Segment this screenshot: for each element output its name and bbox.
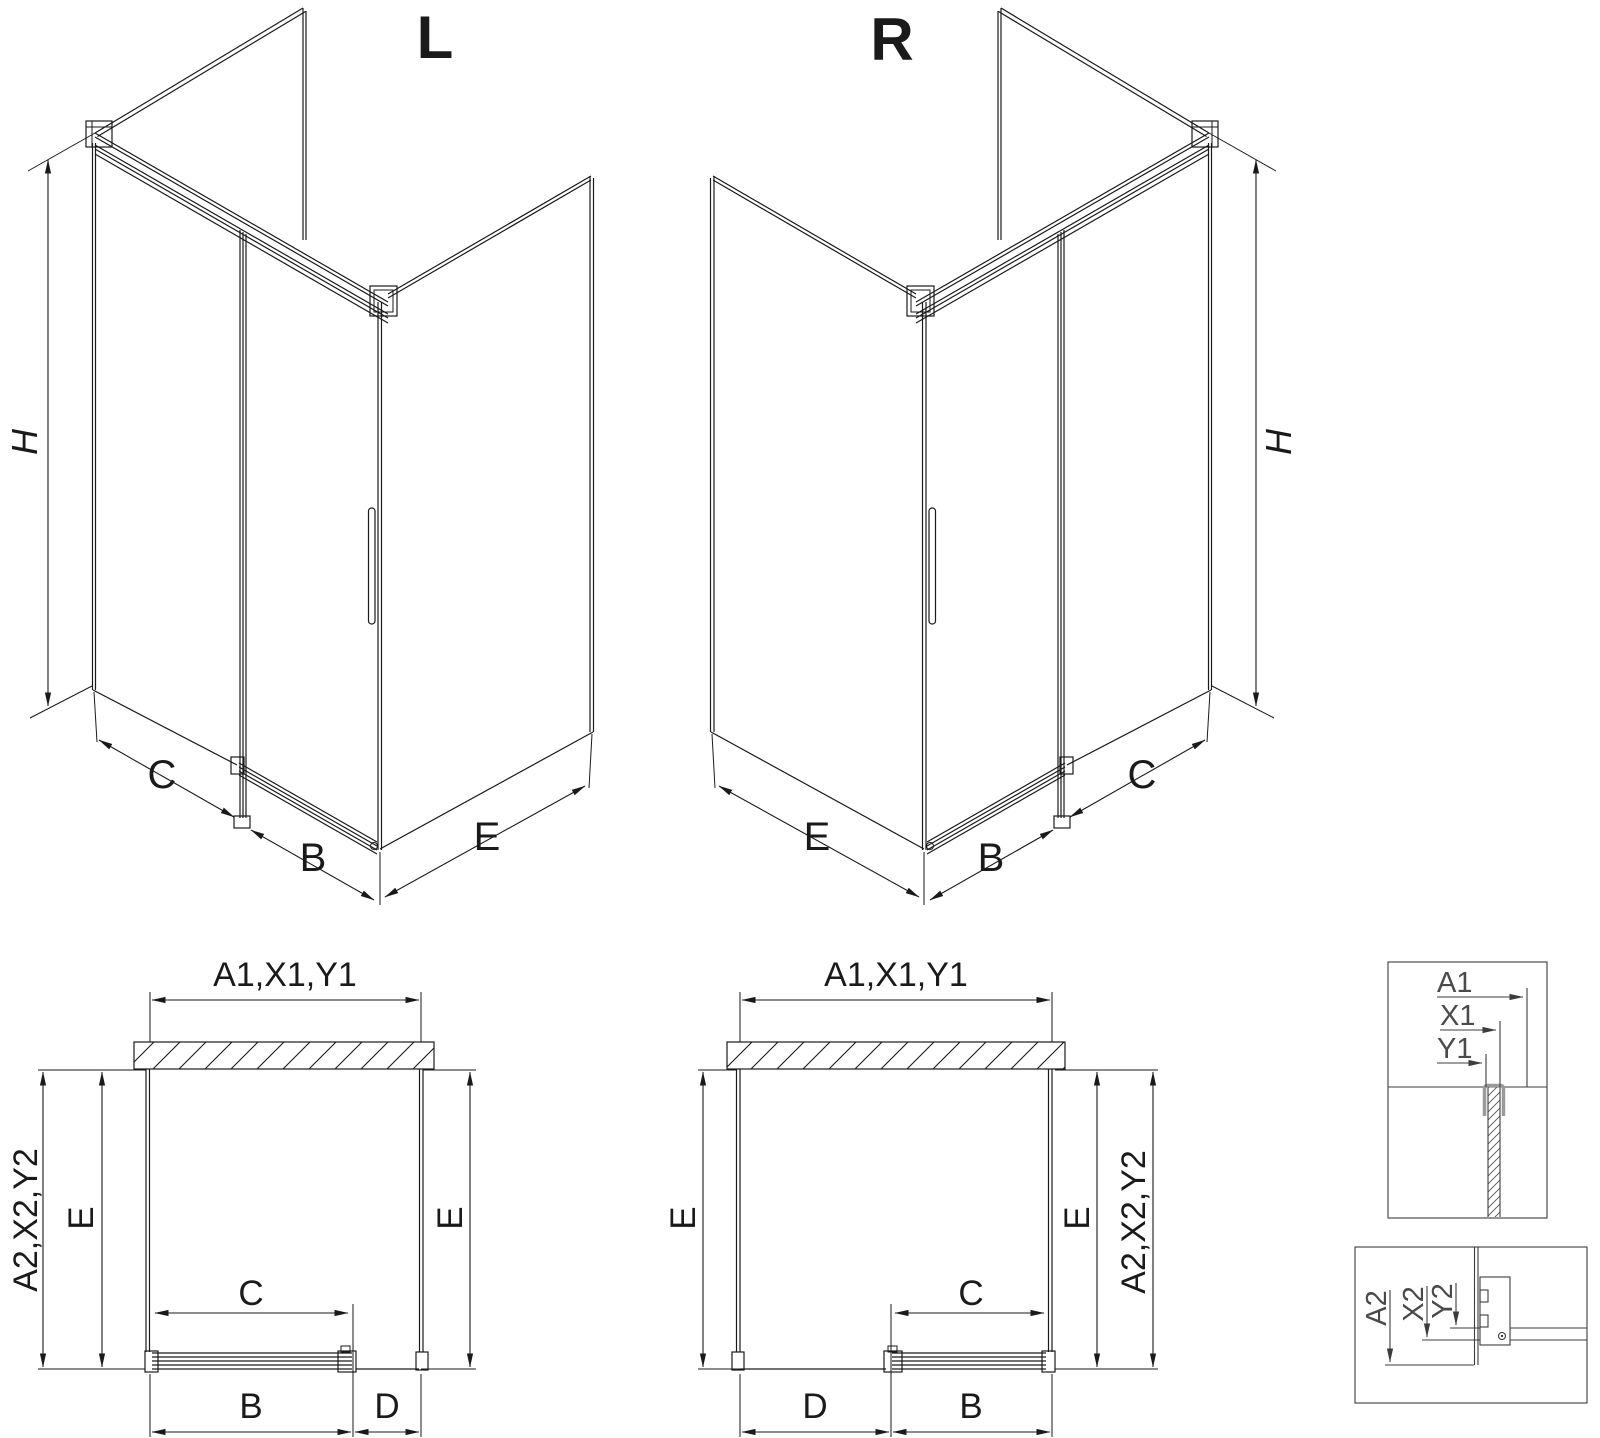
- dim-label-E-right: E: [1058, 1206, 1097, 1229]
- door-assembly-plan-right: [740, 1346, 1055, 1372]
- back-panel-left: [93, 8, 307, 765]
- dim-label-E-left: E: [664, 1206, 703, 1229]
- dimension-height-left: H: [4, 133, 95, 718]
- dimension-depth-plan-right: E A2,X2,Y2: [1055, 1070, 1158, 1369]
- svg-text:Y2: Y2: [1427, 1283, 1459, 1318]
- glass-panels-plan-right: [732, 1069, 1052, 1370]
- wall-hatch: [134, 1042, 434, 1069]
- door-handle: [369, 508, 376, 624]
- detail-panel-top: A1 X1 Y1: [1388, 962, 1547, 1218]
- dimension-c-plan-right: C: [891, 1274, 1044, 1352]
- panel-divider-right: [1054, 230, 1070, 828]
- dimension-fixed-left: C: [94, 692, 234, 817]
- detail-panel-bottom: A2 X2 Y2: [1355, 1247, 1587, 1403]
- dimension-side-left: E: [385, 734, 592, 897]
- dim-label-E: E: [804, 815, 831, 859]
- svg-text:Y1: Y1: [1437, 1033, 1472, 1065]
- dimension-depth-plan-left: A2,X2,Y2 E: [7, 1070, 146, 1369]
- detail-dim-X2: X2: [1398, 1286, 1430, 1337]
- svg-text:X1: X1: [1440, 1000, 1475, 1032]
- svg-text:A1: A1: [1437, 967, 1472, 999]
- variant-right-label: R: [870, 6, 913, 73]
- detail-dim-A2: A2: [1361, 1290, 1393, 1362]
- divider-foot: [1054, 816, 1070, 828]
- door-handle: [929, 508, 936, 624]
- dim-label-A2X2Y2: A2,X2,Y2: [7, 1148, 45, 1292]
- detail-dim-Y2: Y2: [1427, 1283, 1459, 1325]
- dim-label-C: C: [958, 1274, 983, 1313]
- dim-label-A1X1Y1: A1,X1,Y1: [213, 956, 357, 994]
- dim-label-B: B: [300, 836, 327, 880]
- dim-label-E-right: E: [431, 1206, 470, 1229]
- detail-dim-Y1: Y1: [1437, 1033, 1486, 1087]
- dimension-a1-plan-right: A1,X1,Y1: [740, 956, 1052, 1042]
- dim-label-B: B: [959, 1387, 982, 1426]
- dimension-c-plan-left: C: [155, 1274, 353, 1352]
- variant-left-label: L: [417, 4, 454, 71]
- dim-label-C: C: [148, 753, 177, 797]
- back-panel-right: [998, 8, 1212, 765]
- svg-text:X2: X2: [1398, 1286, 1430, 1321]
- dim-label-B: B: [978, 836, 1005, 880]
- dim-label-A1X1Y1: A1,X1,Y1: [824, 956, 968, 994]
- dim-label-D: D: [802, 1387, 827, 1426]
- dimension-e-right-plan-left: E: [421, 1070, 476, 1369]
- wall-hatch: [727, 1042, 1065, 1069]
- technical-drawing-sheet: L: [0, 0, 1600, 1438]
- dim-label-E-left: E: [62, 1206, 101, 1229]
- dim-label-H: H: [1258, 428, 1299, 455]
- shower-enclosure-diagram: L: [0, 0, 1600, 1438]
- door-assembly-plan-left: [145, 1346, 419, 1372]
- dimension-a1-plan-left: A1,X1,Y1: [150, 956, 421, 1042]
- dimension-fixed-right: C: [1070, 692, 1210, 817]
- svg-text:A2: A2: [1361, 1290, 1393, 1325]
- dimension-side-right: E: [712, 734, 919, 897]
- dim-label-C: C: [1128, 753, 1157, 797]
- iso-view-left: L: [4, 4, 594, 905]
- plan-view-left: A1,X1,Y1 A2,X2,Y2 E E C B D: [7, 956, 476, 1437]
- iso-view-right: R: [711, 6, 1300, 905]
- dim-label-C: C: [238, 1274, 263, 1313]
- plan-view-right: A1,X1,Y1 E E A2,X2,Y2 C D B: [664, 956, 1158, 1437]
- dimension-e-left-plan-right: E: [664, 1070, 740, 1369]
- glass-section: [1488, 1087, 1500, 1217]
- divider-foot: [234, 816, 250, 828]
- dimension-height-right: H: [1209, 133, 1299, 718]
- glass-panels-plan-left: [146, 1069, 428, 1370]
- side-panel-right: [711, 176, 925, 849]
- panel-divider-left: [234, 230, 250, 828]
- dim-label-A2X2Y2: A2,X2,Y2: [1115, 1150, 1153, 1294]
- sliding-door-right: [923, 302, 936, 850]
- dim-label-B: B: [239, 1387, 262, 1426]
- dim-label-E: E: [474, 815, 501, 859]
- sliding-door-left: [369, 302, 382, 850]
- dim-label-H: H: [4, 428, 45, 455]
- side-panel-left: [380, 176, 594, 849]
- dim-label-D: D: [374, 1387, 399, 1426]
